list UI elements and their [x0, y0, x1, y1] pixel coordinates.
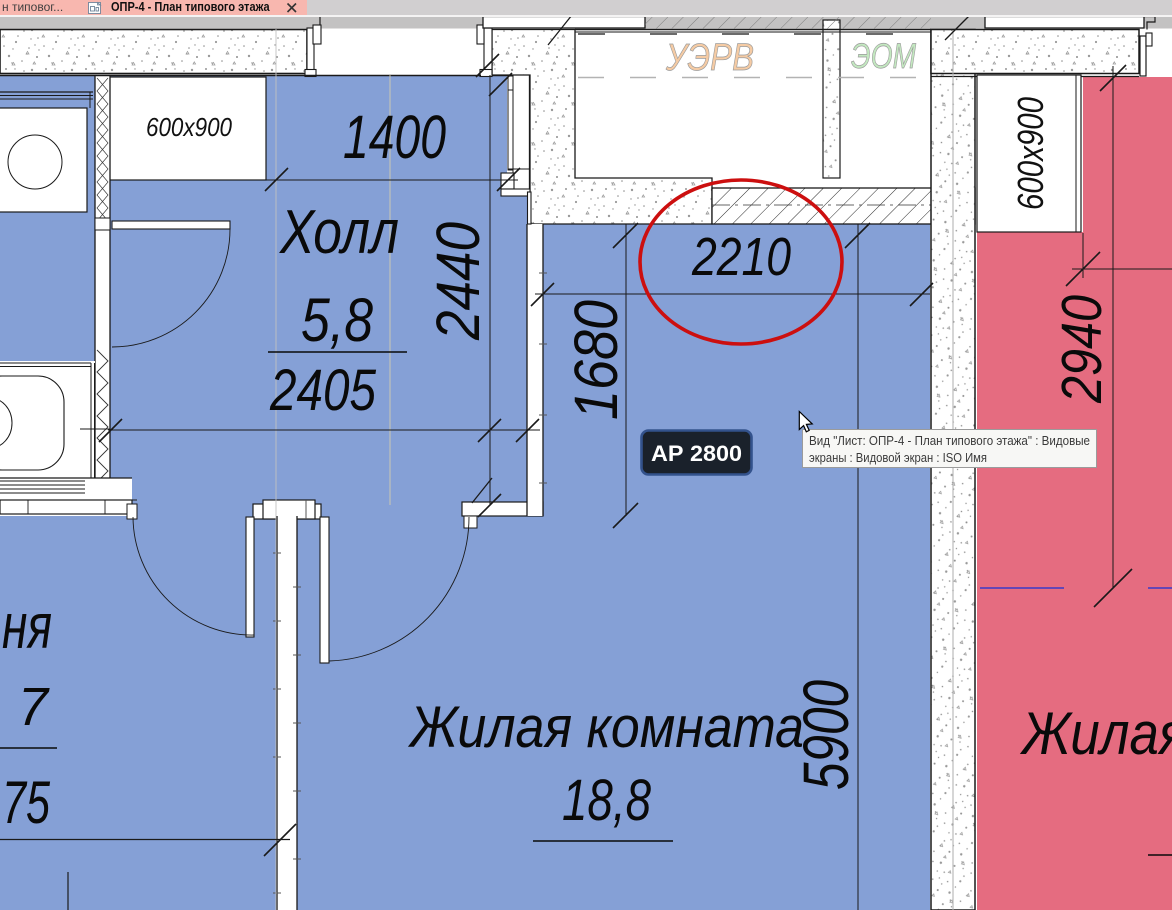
svg-text:7: 7	[18, 677, 50, 737]
svg-text:5,8: 5,8	[301, 286, 373, 354]
svg-text:Вид "Лист: ОПР-4 - План типово: Вид "Лист: ОПР-4 - План типового этажа" …	[809, 434, 1090, 448]
svg-text:Жилая комната: Жилая комната	[407, 695, 804, 760]
svg-text:75: 75	[2, 769, 50, 836]
svg-text:600x900: 600x900	[146, 112, 232, 142]
svg-text:АР 2800: АР 2800	[651, 441, 742, 466]
svg-text:Холл: Холл	[278, 198, 399, 267]
svg-text:ня: ня	[2, 590, 52, 662]
svg-text:Жилая: Жилая	[1019, 700, 1172, 767]
svg-text:экраны : Видовой экран : ISO И: экраны : Видовой экран : ISO Имя	[809, 451, 987, 465]
svg-text:ЭОМ: ЭОМ	[851, 37, 917, 76]
svg-text:2440: 2440	[424, 222, 492, 341]
svg-text:2405: 2405	[269, 358, 376, 423]
svg-text:УЭРВ: УЭРВ	[665, 37, 754, 79]
svg-text:600x900: 600x900	[1010, 97, 1051, 210]
svg-text:2210: 2210	[691, 227, 791, 287]
svg-text:1680: 1680	[562, 300, 630, 420]
svg-text:18,8: 18,8	[562, 768, 651, 833]
svg-text:2940: 2940	[1050, 295, 1114, 404]
svg-text:1400: 1400	[343, 103, 446, 171]
